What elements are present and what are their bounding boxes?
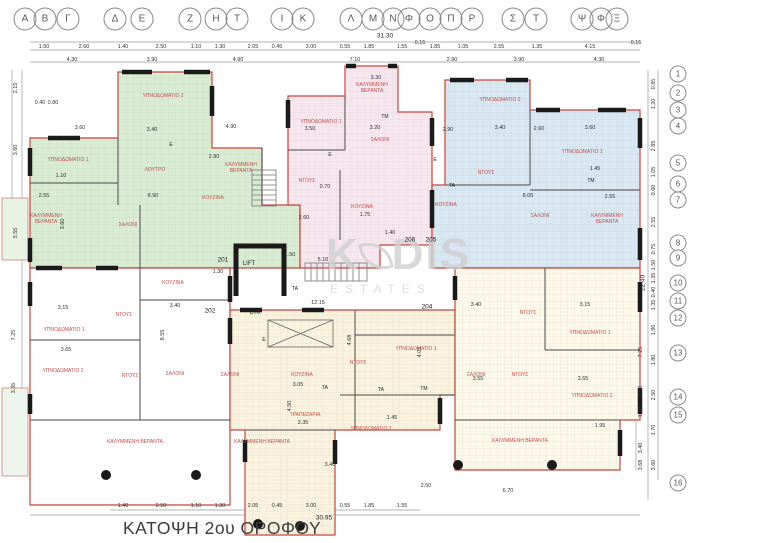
dim-interior: 3.40 — [325, 462, 336, 468]
dim-interior: 1.95 — [595, 423, 606, 429]
dim-interior: 2.60 — [299, 215, 310, 221]
dim-bottom-row: 2.05 — [248, 503, 259, 509]
room-label: E — [169, 142, 172, 148]
room-label: ΣΑΛΟΝΙ — [221, 372, 240, 378]
room-label: TM — [381, 114, 388, 120]
room-label: E — [328, 152, 331, 158]
unit-number: 203 — [250, 309, 261, 316]
dim-right-chain: 1.05 — [651, 167, 657, 178]
dim-interior: 3.50 — [305, 126, 316, 132]
dim-interior: 1.50 — [285, 252, 296, 258]
room-label: TA — [378, 387, 384, 393]
lift-label: LIFT — [243, 261, 255, 267]
dim-interior: 1.40 — [385, 230, 396, 236]
grid-number: 2 — [670, 85, 687, 102]
room-label: ΚΑΛΥΜΜΕΝΗ ΒΕΡΑΝΤΑ — [585, 213, 629, 225]
dim-top-row1: 0.55 — [340, 44, 351, 50]
dim-right-chain: 0.40 — [651, 287, 657, 298]
grid-number: 12 — [670, 310, 687, 327]
unit-202-shape — [30, 268, 230, 505]
dim-interior: 3.60 — [75, 125, 86, 131]
dim-right-chain: 1.35 — [651, 273, 657, 284]
room-label: ΝΤΟΥΣ — [116, 312, 133, 318]
room-label: ΝΤΟΥΣ — [478, 170, 495, 176]
dim-top-row2: 3.90 — [514, 57, 525, 63]
dim-interior: 0.40 — [35, 100, 46, 106]
dim-top-row2: 2.90 — [447, 57, 458, 63]
room-label: ΥΠΝΟΔΩΜΑΤΙΟ 1 — [569, 330, 610, 336]
room-label: ΚΑΛΥΜΜΕΝΗ ΒΕΡΑΝΤΑ — [26, 213, 66, 225]
dim-interior: 6.70 — [503, 488, 514, 494]
dim-top-row1: 1.05 — [458, 44, 469, 50]
dim-interior: 3.65 — [578, 376, 589, 382]
dim-right-chain: 1.20 — [651, 99, 657, 110]
room-label: ΥΠΝΟΔΩΜΑΤΙΟ 2 — [142, 93, 183, 99]
room-label: ΝΤΟΥΣ — [512, 372, 529, 378]
dim-interior: 3.40 — [471, 302, 482, 308]
floorplan-canvas: K DIS ESTATES 31.30 30.95 22.40 LIFT ΚΑΤ… — [0, 0, 768, 543]
room-label: ΥΠΝΟΔΩΜΑΤΙΟ 1 — [300, 119, 341, 125]
dim-interior: 8.90 — [148, 193, 159, 199]
room-label: ΣΑΛΟΝΙ — [467, 372, 486, 378]
dim-bottom-row: 2.50 — [156, 503, 167, 509]
room-label: TA — [292, 286, 298, 292]
grid-number: 11 — [670, 293, 687, 310]
dim-right-chain: 0.85 — [651, 79, 657, 90]
dim-right-inner: 2.50 — [638, 386, 644, 397]
dim-left-chain: 2.15 — [13, 83, 19, 94]
room-label: ΚΑΛΥΜΜΕΝΗ ΒΕΡΑΝΤΑ — [350, 82, 394, 94]
dim-bottom-row: 1.85 — [364, 503, 375, 509]
grid-number: 3 — [670, 102, 687, 119]
dim-right-inner: 3.68 — [638, 460, 644, 471]
dim-interior: 1.30 — [213, 269, 224, 275]
dim-interior: 4.90 — [226, 124, 237, 130]
dim-interior: 2.90 — [209, 154, 220, 160]
grid-letter: Δ — [104, 8, 127, 31]
grid-number: 13 — [670, 345, 687, 362]
grid-letter: Ε — [131, 8, 154, 31]
dim-right-chain: 0.60 — [651, 185, 657, 196]
room-label: ΣΑΛΟΝΙ — [371, 137, 390, 143]
dim-interior: 1.45 — [590, 166, 601, 172]
dim-interior: 4.50 — [287, 401, 293, 412]
dim-top-row1: 1.30 — [215, 44, 226, 50]
dim-right-inner: 3.40 — [638, 443, 644, 454]
room-label: ΚΑΛΥΜΜΕΝΗ ΒΕΡΑΝΤΑ — [107, 439, 163, 445]
dim-top-row2: 4.30 — [67, 57, 78, 63]
room-label: TM — [587, 178, 594, 184]
grid-letter: Ο — [419, 8, 442, 31]
room-label: ΝΤΟΥΣ — [520, 310, 537, 316]
dim-left-chain: 5.55 — [13, 228, 19, 239]
grid-letter: Φ — [398, 8, 421, 31]
room-label: ΚΑΛΥΜΜΕΝΗ ΒΕΡΑΝΤΑ — [492, 438, 548, 444]
dim-interior: 3.40 — [495, 125, 506, 131]
dim-interior: 1.10 — [56, 173, 67, 179]
grid-letter: Η — [205, 8, 228, 31]
dim-top-row1: 1.35 — [532, 44, 543, 50]
dim-interior: 3.15 — [580, 302, 591, 308]
dim-interior: 3.05 — [293, 382, 304, 388]
dim-bottom-row: 0.45 — [272, 503, 283, 509]
dim-right-chain: 0.75 — [651, 244, 657, 255]
room-label: ΚΟΥΖΙΝΑ — [162, 280, 184, 286]
dim-interior: 2.60 — [534, 126, 545, 132]
grid-letter: Κ — [292, 8, 315, 31]
grid-number: 14 — [670, 389, 687, 406]
grid-letter: Ι — [271, 8, 294, 31]
room-label: ΝΤΟΥΣ — [122, 373, 139, 379]
dim-right-chain: 2.85 — [651, 141, 657, 152]
dim-top-row1: 0.15 — [415, 40, 426, 46]
room-label: ΥΠΝΟΔΩΜΑΤΙΟ 1 — [395, 346, 436, 352]
room-label: ΣΑΛΟΝΙ — [531, 213, 550, 219]
room-label: E — [262, 337, 265, 343]
dim-interior: 3.35 — [298, 420, 309, 426]
room-label: ΚΑΛΥΜΜΕΝΗ ΒΕΡΑΝΤΑ — [234, 439, 290, 445]
dim-bottom-row: 3.00 — [306, 503, 317, 509]
leaf-icon — [358, 238, 394, 274]
dim-top-row1: 1.50 — [39, 44, 50, 50]
dim-top-row2: 3.90 — [147, 57, 158, 63]
room-label: ΥΠΝΟΔΩΜΑΤΙΟ 2 — [42, 368, 83, 374]
dim-top-row1: 2.50 — [156, 44, 167, 50]
room-label: ΚΟΥΖΙΝΑ — [351, 204, 373, 210]
dim-left-chain: 3.60 — [13, 145, 19, 156]
room-label: ΛΟΥΤΡΟ — [145, 167, 166, 173]
watermark: K DIS ESTATES — [326, 234, 471, 296]
dim-top-row1: 1.40 — [118, 44, 129, 50]
floorplan-page: { "title": "ΚΑΤΟΨΗ 2ου ΟΡΟΦΟΥ", "lift_la… — [0, 0, 768, 543]
grid-letter: Ζ — [179, 8, 202, 31]
grid-letter: Γ — [57, 8, 80, 31]
dim-top-row1: 0.45 — [272, 44, 283, 50]
room-label: ΥΠΝΟΔΩΜΑΤΙΟ 1 — [561, 149, 602, 155]
grid-letter: Τ — [226, 8, 249, 31]
room-label: ΥΠΝΟΔΩΜΑΤΙΟ 2 — [479, 97, 520, 103]
dim-interior: 3.30 — [371, 75, 382, 81]
dim-bottom-row: 1.30 — [215, 503, 226, 509]
unit-number: 205 — [426, 237, 437, 244]
dim-right-chain: 1.70 — [651, 425, 657, 436]
dim-bottom-row: 0.55 — [340, 503, 351, 509]
dim-interior: 8.55 — [160, 330, 166, 341]
dim-right-chain: 1.35 — [651, 300, 657, 311]
room-label: ΝΤΟΥΣ — [299, 178, 316, 184]
room-label: TA — [322, 385, 328, 391]
grid-number: 15 — [670, 407, 687, 424]
room-label: E — [433, 157, 436, 163]
room-label: ΥΠΝΟΔΩΜΑΤΙΟ 1 — [47, 157, 88, 163]
dim-total-right: 22.40 — [640, 275, 647, 291]
dim-interior: 4.68 — [347, 335, 353, 346]
room-label: ΥΠΝΟΔΩΜΑΤΙΟ 2 — [571, 393, 612, 399]
dim-top-row2: 4.30 — [594, 57, 605, 63]
dim-top-row1: 1.55 — [397, 44, 408, 50]
dim-interior: 5.10 — [318, 257, 329, 263]
dim-right-chain: 1.90 — [651, 325, 657, 336]
dim-interior: 3.40 — [147, 127, 158, 133]
dim-interior: 1.75 — [360, 212, 371, 218]
dim-interior: 0.70 — [320, 184, 331, 190]
dim-right-chain: 1.50 — [651, 260, 657, 271]
watermark-text-left: K — [326, 234, 360, 276]
dim-top-row2: 4.90 — [233, 57, 244, 63]
dim-interior: 2.55 — [39, 193, 50, 199]
dim-interior: 3.40 — [170, 303, 181, 309]
grid-letter: Π — [440, 8, 463, 31]
dim-interior: 1.45 — [387, 415, 398, 421]
dim-top-row1: 4.15 — [585, 44, 596, 50]
dim-top-row1: 2.55 — [494, 44, 505, 50]
room-label: ΥΠΝΟΔΩΜΑΤΙΟ 2 — [350, 426, 391, 432]
dim-interior: 2.55 — [605, 194, 616, 200]
dim-bottom-row: 1.40 — [118, 503, 129, 509]
grid-number: 10 — [670, 275, 687, 292]
unit-number: 206 — [405, 237, 416, 244]
grid-letter: Ξ — [606, 8, 629, 31]
dim-interior: 0.80 — [48, 100, 59, 106]
unit-number: 202 — [205, 308, 216, 315]
room-label: ΤΡΑΠΕΖΑΡΙΑ — [290, 412, 321, 418]
dim-right-inner: 1.10 — [638, 407, 644, 418]
dim-interior: 3.20 — [370, 125, 381, 131]
dim-top-row1: 2.60 — [79, 44, 90, 50]
room-label: ΚΟΥΖΙΝΑ — [202, 195, 224, 201]
dim-interior: 3.60 — [585, 125, 596, 131]
dim-right-chain: 2.55 — [651, 217, 657, 228]
room-label: TM — [420, 386, 427, 392]
unit-number: 201 — [218, 257, 229, 264]
watermark-subtext: ESTATES — [330, 282, 471, 296]
grid-number: 16 — [670, 475, 687, 492]
grid-number: 1 — [670, 66, 687, 83]
dim-interior: 12.15 — [311, 300, 325, 306]
dim-right-chain: 3.60 — [651, 460, 657, 471]
grid-number: 7 — [670, 192, 687, 209]
dim-top-row1: 0.15 — [631, 40, 642, 46]
dim-bottom-row: 1.55 — [397, 503, 408, 509]
dim-interior: 2.90 — [443, 127, 454, 133]
grid-letter: Β — [34, 8, 57, 31]
unit-number: 204 — [422, 304, 433, 311]
dim-total-top: 31.30 — [377, 33, 393, 40]
dim-interior: 3.15 — [58, 305, 69, 311]
dim-right-inner: 7.25 — [638, 347, 644, 358]
room-label: TA — [449, 183, 455, 189]
room-label: ΚΟΥΖΙΝΑ — [435, 202, 457, 208]
dim-interior: 2.50 — [421, 483, 432, 489]
room-label: ΣΑΛΟΝΙ — [166, 371, 185, 377]
room-label: ΣΑΛΟΝΙ — [119, 222, 138, 228]
dim-left-chain: 7.25 — [11, 330, 17, 341]
dim-right-chain: 1.80 — [651, 355, 657, 366]
dim-top-row1: 1.85 — [430, 44, 441, 50]
dim-interior: 8.05 — [523, 193, 534, 199]
grid-number: 4 — [670, 118, 687, 135]
grid-letter: Ρ — [461, 8, 484, 31]
dim-top-row1: 1.10 — [191, 44, 202, 50]
dim-bottom-row: 1.10 — [191, 503, 202, 509]
dim-interior: 3.65 — [61, 347, 72, 353]
room-label: ΚΟΥΖΙΝΑ — [291, 372, 313, 378]
grid-letter: Τ — [525, 8, 548, 31]
grid-letter: Σ — [502, 8, 525, 31]
grid-letter: Λ — [340, 8, 363, 31]
room-label: ΝΤΟΥΣ — [350, 360, 367, 366]
dim-top-row1: 1.85 — [364, 44, 375, 50]
grid-number: 6 — [670, 176, 687, 193]
drawing-title: ΚΑΤΟΨΗ 2ου ΟΡΟΦΟΥ — [123, 518, 321, 539]
dim-right-chain: 2.50 — [651, 390, 657, 401]
room-label: ΥΠΝΟΔΩΜΑΤΙΟ 1 — [43, 327, 84, 333]
grid-number: 9 — [670, 250, 687, 267]
dim-top-row2: 7.10 — [350, 57, 361, 63]
grid-number: 5 — [670, 155, 687, 172]
dim-left-chain: 3.35 — [11, 383, 17, 394]
dim-top-row1: 3.00 — [306, 44, 317, 50]
room-label: ΚΑΛΥΜΜΕΝΗ ΒΕΡΑΝΤΑ — [221, 162, 261, 174]
dim-top-row1: 2.05 — [248, 44, 259, 50]
